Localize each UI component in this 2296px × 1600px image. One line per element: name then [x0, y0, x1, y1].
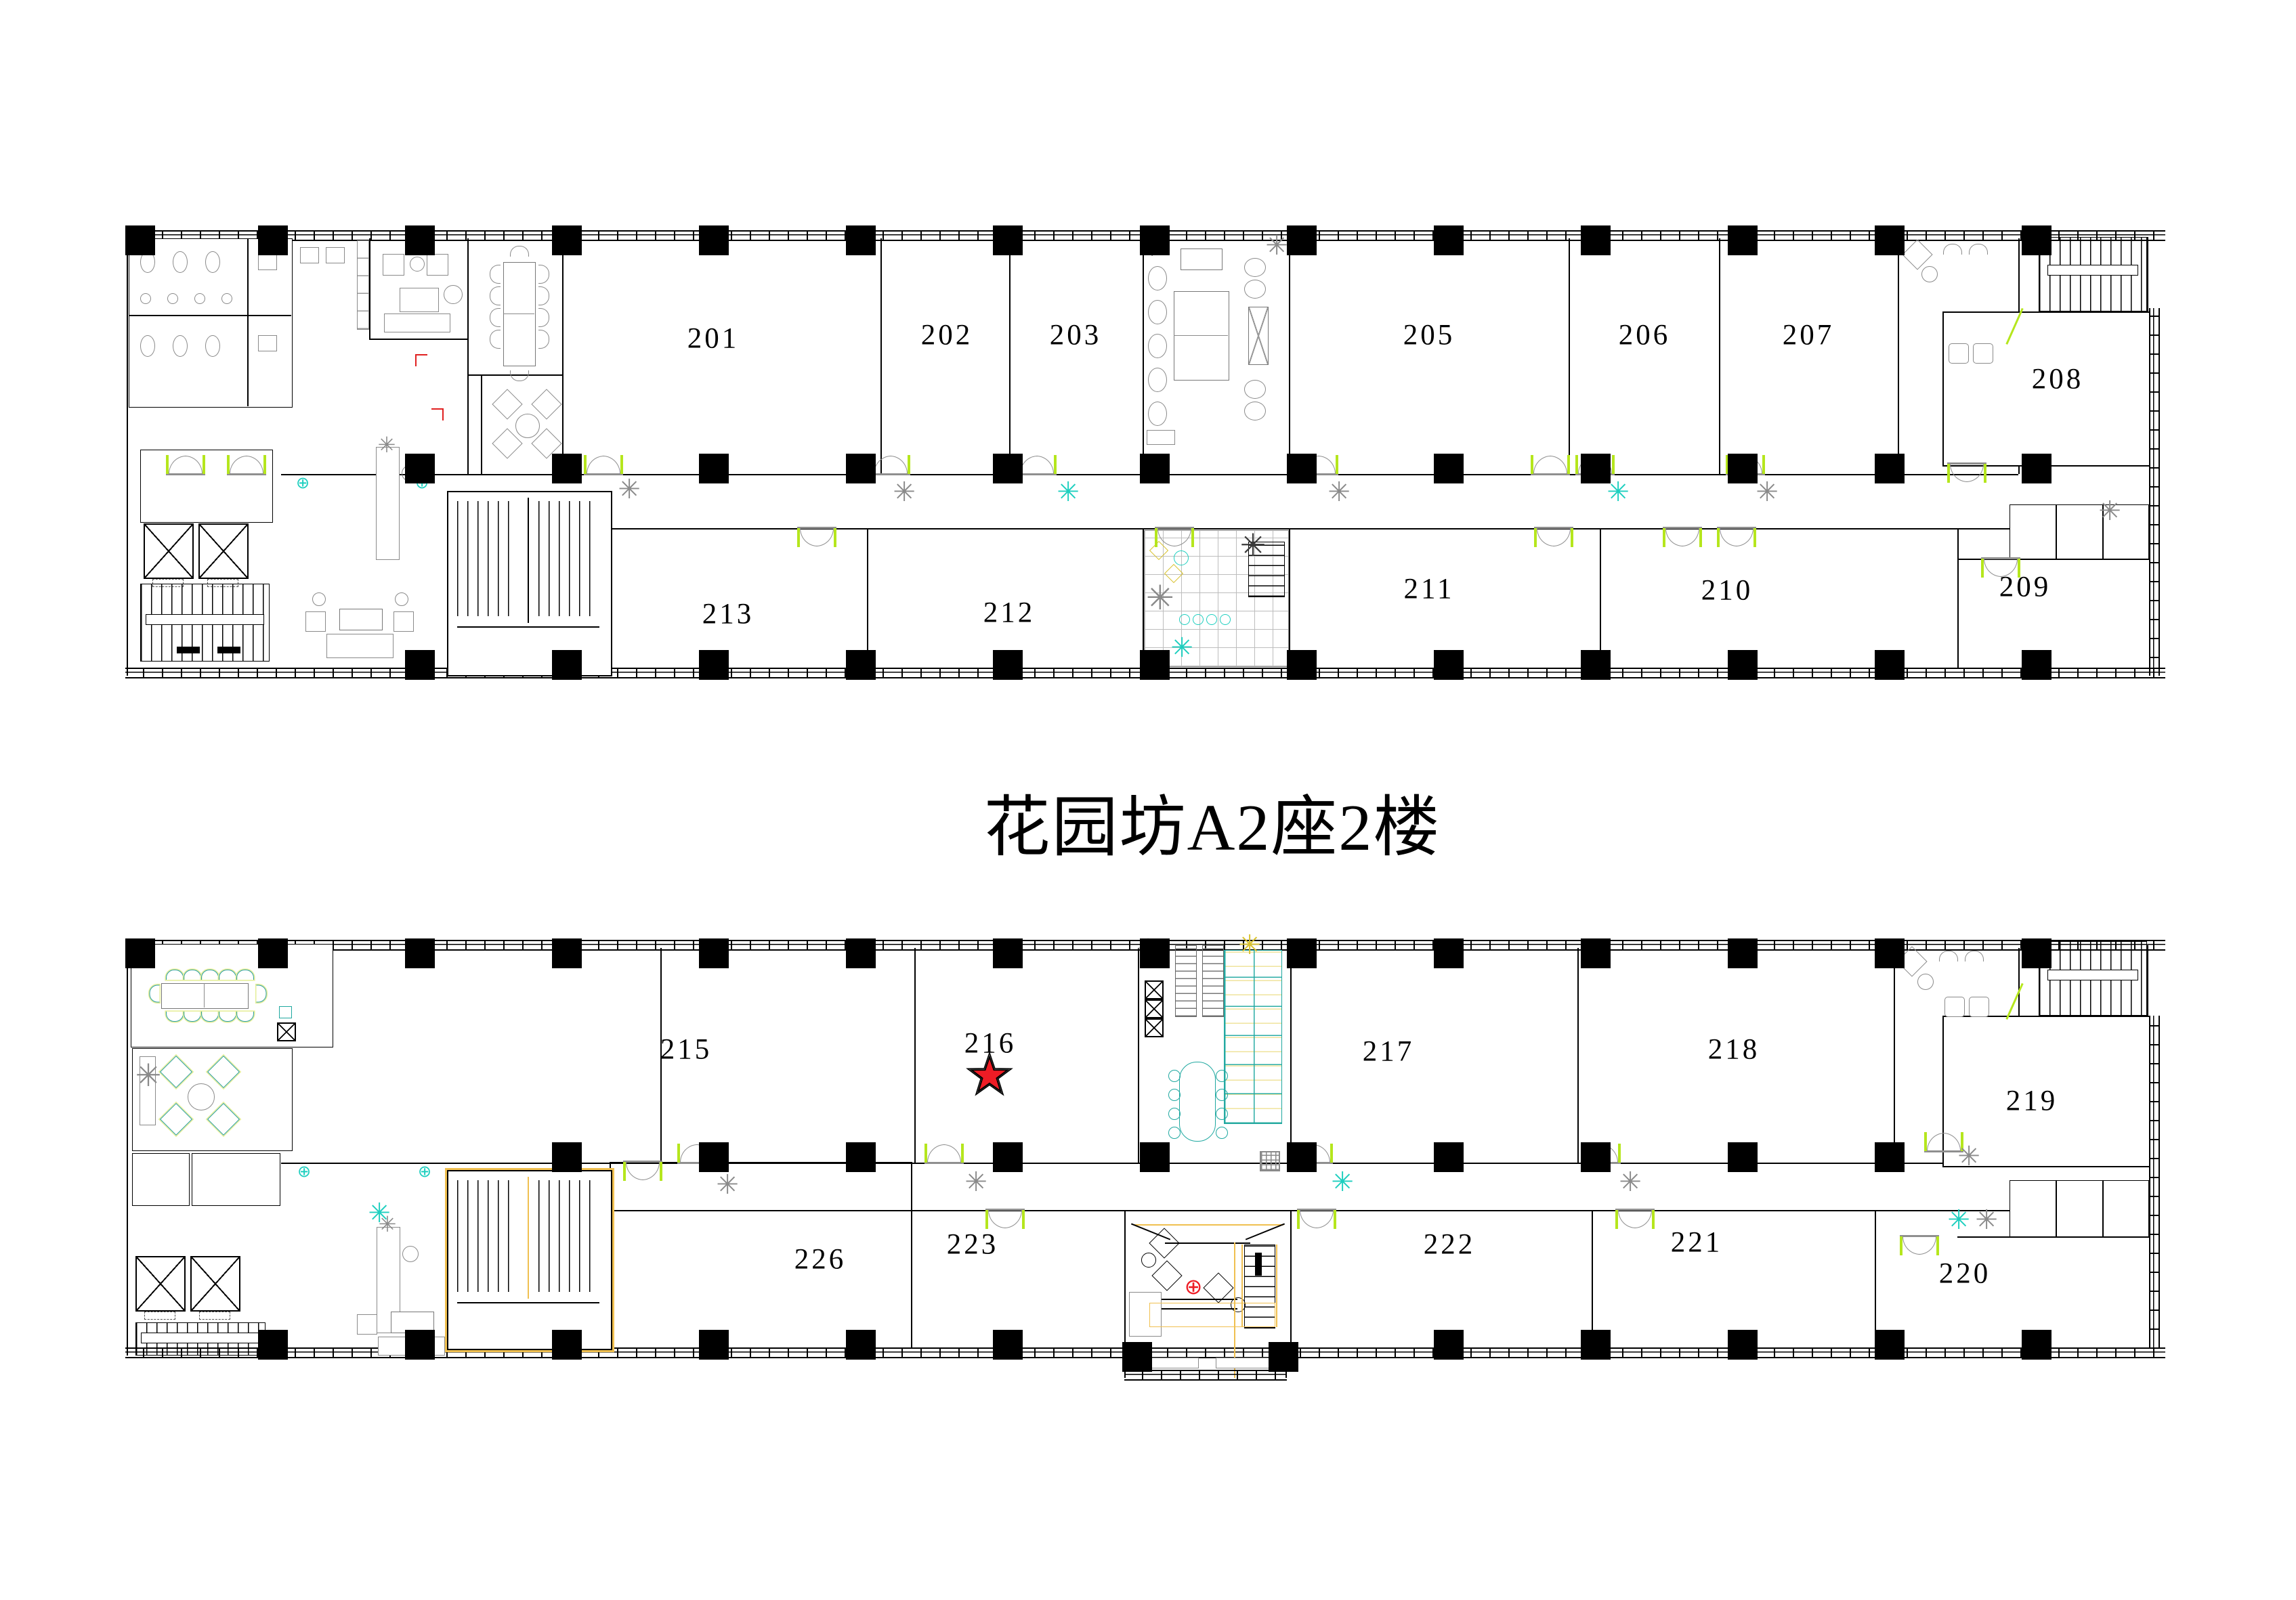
chair — [1949, 343, 1969, 364]
long-table — [1179, 1062, 1216, 1142]
column — [699, 225, 729, 255]
wall-223-entry — [1124, 1210, 1126, 1347]
chair — [1944, 997, 1965, 1017]
bed-line — [1174, 335, 1228, 336]
wall-215-216 — [914, 948, 916, 1163]
wall-221-220 — [1875, 1210, 1876, 1347]
toilet-fixture — [205, 251, 220, 273]
room-216-star-marker — [962, 1049, 1017, 1103]
chair — [510, 370, 529, 381]
plant-icon: ✳ — [378, 434, 396, 456]
wall — [467, 238, 469, 474]
column — [1728, 454, 1758, 483]
column — [1875, 1330, 1905, 1360]
door-icon — [797, 528, 836, 547]
entry-mat — [1216, 1358, 1270, 1368]
survey-point-icon: ⊕ — [297, 1163, 311, 1180]
door-icon — [227, 455, 266, 474]
elevator-door — [199, 1312, 230, 1320]
room-label-205: 205 — [1403, 319, 1455, 352]
plant-icon: ✳ — [135, 1060, 162, 1091]
planter — [1220, 614, 1231, 625]
column — [552, 938, 582, 968]
door-icon — [1534, 528, 1573, 547]
grand-stair-flight — [538, 501, 599, 616]
column — [1581, 454, 1611, 483]
plant-icon: ✳ — [1170, 634, 1193, 662]
wall-218-lobby — [1894, 948, 1895, 1163]
east-window-wall — [2149, 1016, 2160, 1347]
column — [846, 650, 876, 680]
column — [1434, 1330, 1464, 1360]
column — [1875, 454, 1905, 483]
table — [1921, 266, 1938, 282]
door-leaf — [2005, 983, 2024, 1020]
wall — [369, 339, 467, 340]
chair — [538, 330, 549, 349]
planter — [1193, 614, 1204, 625]
shaft — [1145, 999, 1164, 1018]
column — [405, 1330, 435, 1360]
column — [846, 454, 876, 483]
column — [1581, 1142, 1611, 1172]
wall-201-202 — [880, 238, 882, 474]
stair-rail — [528, 498, 529, 623]
column — [993, 225, 1023, 255]
door-icon — [1155, 528, 1194, 547]
chair — [219, 970, 236, 980]
small-rooms-box — [2010, 504, 2149, 560]
coffee-table — [400, 288, 439, 312]
column — [699, 1330, 729, 1360]
column — [1728, 1330, 1758, 1360]
toilet-fixture — [205, 335, 220, 357]
column — [405, 454, 435, 483]
chair-oval — [1244, 258, 1266, 277]
stool — [1168, 1108, 1181, 1120]
lamp — [312, 592, 326, 606]
washbasin — [326, 247, 345, 263]
floorplan-sheet: { "title": "花园坊A2座2楼", "floors": [ { "na… — [0, 0, 2296, 1600]
column — [699, 454, 729, 483]
column — [993, 1330, 1023, 1360]
room-label-211: 211 — [1404, 573, 1455, 606]
wall — [481, 374, 482, 474]
small-rooms-box — [2010, 1180, 2149, 1238]
stair-rail — [146, 614, 264, 625]
wall-210-209 — [1957, 528, 1959, 668]
door-icon — [1531, 455, 1570, 474]
chair — [166, 970, 184, 980]
entry-line — [1134, 1224, 1283, 1226]
survey-point-icon: ⊕ — [1185, 1276, 1203, 1297]
wall — [369, 238, 370, 339]
chair — [510, 246, 529, 257]
chair — [236, 970, 254, 980]
stair-landing — [457, 1302, 599, 1303]
column — [1434, 650, 1464, 680]
chair-oval — [1148, 300, 1167, 324]
survey-point-icon: ⊕ — [296, 475, 310, 491]
armchair-round — [444, 285, 463, 304]
column — [552, 454, 582, 483]
break-mark — [431, 408, 444, 420]
plant-icon: ✳ — [1619, 1169, 1642, 1196]
lounge-x-chair — [1248, 307, 1269, 365]
column — [552, 1330, 582, 1360]
chair — [201, 970, 219, 980]
table — [1917, 974, 1934, 990]
east-wall — [2147, 237, 2148, 311]
washbasin — [300, 247, 319, 263]
urinal-fixture — [167, 293, 178, 304]
bench — [1147, 430, 1175, 445]
column — [2022, 454, 2051, 483]
armchair — [427, 254, 448, 276]
chair — [1902, 239, 1932, 269]
wall-226-223 — [911, 1162, 912, 1347]
door-icon — [985, 1210, 1025, 1229]
column — [993, 650, 1023, 680]
urinal-fixture — [221, 293, 232, 304]
wardrobe — [357, 240, 369, 330]
stool — [1216, 1089, 1228, 1101]
plant-icon: ✳ — [1146, 581, 1174, 615]
plant-icon: ✳ — [618, 476, 641, 503]
plant-icon: ✳ — [2098, 498, 2121, 525]
chair-oval — [1148, 266, 1167, 290]
column — [552, 225, 582, 255]
store-room — [192, 1153, 280, 1206]
plant-icon: ✳ — [1327, 479, 1351, 506]
elevator — [190, 1256, 240, 1312]
grand-stair-flight — [538, 1180, 599, 1292]
stool — [1168, 1070, 1181, 1082]
room-label-217: 217 — [1363, 1035, 1415, 1068]
column — [1728, 1142, 1758, 1172]
plant-icon: ✳ — [1947, 1207, 1970, 1234]
planter — [1179, 614, 1190, 625]
stair-arrow — [1255, 1253, 1262, 1276]
side-chair — [357, 1314, 377, 1335]
room-label-201: 201 — [687, 322, 740, 355]
lounge-table — [188, 1083, 215, 1110]
chair — [184, 970, 201, 980]
washbasin — [258, 254, 277, 270]
plant-icon: ✳ — [1238, 932, 1261, 959]
wall — [2056, 1180, 2057, 1236]
stool — [1216, 1070, 1228, 1082]
wall-207-lobby — [1898, 238, 1899, 474]
room-label-226: 226 — [794, 1243, 847, 1276]
stool — [1216, 1127, 1228, 1139]
door-icon — [1615, 1210, 1655, 1229]
chair — [1939, 951, 1958, 961]
column — [846, 1142, 876, 1172]
shaft — [277, 1022, 296, 1041]
sink — [279, 1006, 292, 1018]
wall-202-203 — [1009, 238, 1011, 474]
shaft — [1145, 1018, 1164, 1037]
side-table — [410, 257, 425, 272]
column — [1434, 225, 1464, 255]
sofa — [384, 313, 450, 332]
elevator — [135, 1256, 186, 1312]
stool — [1168, 1127, 1181, 1139]
lounge-chair — [492, 389, 522, 419]
chair — [1965, 951, 1984, 961]
stair-rail — [2047, 265, 2138, 276]
wall-201-left — [562, 238, 564, 474]
door-icon — [1663, 528, 1702, 547]
elevator-door — [144, 1312, 175, 1320]
column — [2022, 1330, 2051, 1360]
side-chair — [305, 611, 326, 632]
wall-206-207 — [1719, 238, 1720, 474]
column — [552, 650, 582, 680]
column — [2022, 225, 2051, 255]
column — [552, 1142, 582, 1172]
chair — [538, 265, 549, 284]
urinal-fixture — [194, 293, 205, 304]
chair — [490, 308, 501, 327]
column — [1287, 454, 1317, 483]
door-icon — [1017, 455, 1057, 474]
table-line — [503, 313, 534, 314]
column — [1434, 1142, 1464, 1172]
room-label-202: 202 — [921, 319, 973, 352]
column — [2022, 650, 2051, 680]
column — [1581, 650, 1611, 680]
room-label-208: 208 — [2032, 363, 2084, 396]
room-label-213: 213 — [702, 598, 754, 631]
wall-211-210 — [1600, 528, 1601, 668]
column — [2022, 938, 2051, 968]
wall-222-221 — [1592, 1210, 1593, 1347]
column — [993, 938, 1023, 968]
column — [405, 938, 435, 968]
column — [1140, 938, 1170, 968]
column — [125, 225, 155, 255]
column — [846, 1330, 876, 1360]
chair — [538, 286, 549, 305]
plant-icon: ✳ — [1957, 1143, 1980, 1170]
grand-stair-flight — [457, 501, 518, 616]
wall-canteen-217 — [1290, 948, 1292, 1163]
wall-atrium-205 — [1289, 238, 1290, 474]
chair — [490, 286, 501, 305]
conference-table — [161, 983, 249, 1009]
desk-chair — [402, 1246, 419, 1262]
chair — [150, 985, 160, 1003]
door-icon — [1717, 528, 1756, 547]
chair-oval — [1148, 402, 1167, 426]
column — [1875, 650, 1905, 680]
room-label-218: 218 — [1708, 1033, 1760, 1066]
east-wall — [2147, 945, 2148, 1018]
reception-desk — [376, 447, 400, 560]
door-icon — [623, 1162, 662, 1181]
column — [1728, 938, 1758, 968]
upper-floor-plan: ✳ ✳ ✳ ✳ ✳ ✳ — [125, 227, 2165, 679]
toilet-fixture — [173, 335, 188, 357]
washbasin — [258, 335, 277, 351]
chair-oval — [1148, 334, 1167, 358]
plant-icon: ✳ — [964, 1169, 987, 1196]
stool — [1168, 1089, 1181, 1101]
wall — [2102, 1180, 2104, 1236]
room-label-206: 206 — [1619, 319, 1671, 352]
toilet-fixture — [140, 335, 155, 357]
toilet-fixture — [173, 251, 188, 273]
tv-cabinet — [339, 609, 383, 630]
deco-circle — [1174, 550, 1189, 565]
plant-icon: ✳ — [1756, 479, 1779, 506]
wall-203-atrium — [1143, 238, 1144, 474]
column — [1581, 225, 1611, 255]
escalator — [1202, 945, 1224, 1017]
column — [258, 938, 288, 968]
room-label-219: 219 — [2006, 1085, 2058, 1118]
column — [405, 650, 435, 680]
door-icon — [584, 455, 623, 474]
room-label-215: 215 — [660, 1033, 713, 1066]
stair-landing — [457, 626, 599, 628]
column — [1728, 225, 1758, 255]
lamp — [395, 592, 408, 606]
column — [1581, 1330, 1611, 1360]
column — [1140, 1142, 1170, 1172]
portal-column — [1260, 1151, 1280, 1171]
chair-oval — [1244, 402, 1266, 420]
chair — [1943, 244, 1962, 255]
table-line — [204, 983, 205, 1008]
stair-arrow — [217, 647, 240, 653]
column — [1287, 1142, 1317, 1172]
column — [1122, 1342, 1152, 1372]
sheet-title: 花园坊A2座2楼 — [874, 773, 1551, 869]
column — [1875, 938, 1905, 968]
column — [258, 1330, 288, 1360]
plant-icon: ✳ — [1331, 1169, 1354, 1196]
column — [1434, 454, 1464, 483]
column — [1269, 1342, 1298, 1372]
door-icon — [871, 455, 910, 474]
column — [1875, 225, 1905, 255]
east-window-wall — [2149, 308, 2160, 676]
entry-chair — [1151, 1260, 1182, 1291]
room-label-209: 209 — [1999, 571, 2051, 604]
room-label-212: 212 — [983, 597, 1036, 630]
column — [1140, 225, 1170, 255]
wall-220-top — [1957, 1236, 2149, 1238]
plant-icon: ✳ — [716, 1171, 739, 1198]
plant-icon: ✳ — [1975, 1207, 1998, 1234]
store-room — [132, 1153, 190, 1206]
door-icon — [166, 455, 205, 474]
column — [1140, 650, 1170, 680]
column — [1434, 938, 1464, 968]
elevator — [198, 523, 249, 579]
column — [846, 225, 876, 255]
wall-205-206 — [1569, 238, 1570, 474]
column — [1728, 650, 1758, 680]
door-icon — [1947, 464, 1986, 483]
survey-point-icon: ⊕ — [418, 1163, 431, 1180]
side-chair — [394, 611, 414, 632]
workstations — [1224, 950, 1282, 1124]
plant-icon: ✳ — [368, 1200, 391, 1227]
picture — [1181, 248, 1223, 270]
stair-arrow — [177, 647, 200, 653]
entry-mat — [1145, 1358, 1199, 1368]
west-wall — [127, 940, 128, 1356]
wall — [2056, 504, 2057, 559]
column — [846, 938, 876, 968]
column — [1287, 650, 1317, 680]
planter — [1206, 614, 1217, 625]
door-icon — [1297, 1210, 1336, 1229]
lower-floor-plan: ✳ ✳ ✳ ✳ ⊕ — [125, 940, 2165, 1387]
armchair — [383, 254, 404, 276]
column — [1581, 938, 1611, 968]
wall-213-212 — [867, 528, 868, 668]
stair-rail — [528, 1177, 529, 1299]
wall — [129, 315, 291, 316]
lounge-chair — [531, 389, 561, 419]
chair-oval — [1148, 368, 1167, 392]
chair — [538, 308, 549, 327]
column — [699, 650, 729, 680]
stair-rail — [141, 1333, 260, 1343]
chair — [1969, 244, 1988, 255]
plant-icon: ✳ — [1265, 232, 1288, 259]
door-icon — [1900, 1236, 1939, 1255]
plant-icon: ✳ — [893, 479, 916, 506]
grand-stair-flight — [457, 1180, 518, 1292]
break-mark — [415, 354, 427, 366]
chair — [490, 265, 501, 284]
room-label-210: 210 — [1701, 574, 1753, 607]
stair-rail — [1276, 1245, 1277, 1327]
chair-oval — [1244, 380, 1266, 399]
room-label-220: 220 — [1939, 1257, 1991, 1291]
wall-217-218 — [1577, 948, 1579, 1163]
column — [405, 225, 435, 255]
plant-icon: ✳ — [1057, 479, 1080, 506]
room-label-207: 207 — [1783, 319, 1835, 352]
column — [1287, 938, 1317, 968]
highlight-box — [1149, 1303, 1275, 1327]
chair — [1973, 343, 1993, 364]
room-label-223: 223 — [947, 1228, 999, 1261]
wall-entry-222 — [1290, 1210, 1292, 1347]
wall — [247, 238, 249, 406]
room-label-203: 203 — [1050, 319, 1102, 352]
door-icon — [924, 1144, 964, 1163]
column — [1140, 454, 1170, 483]
sofa — [326, 634, 394, 658]
shaft — [1145, 980, 1164, 999]
lounge-table — [515, 414, 540, 438]
column — [993, 1142, 1023, 1172]
chair-oval — [1244, 280, 1266, 299]
chair — [1969, 997, 1989, 1017]
plant-icon: ✳ — [1240, 529, 1267, 561]
room-label-222: 222 — [1424, 1228, 1476, 1261]
column — [258, 225, 288, 255]
stair-rail — [2047, 970, 2138, 980]
